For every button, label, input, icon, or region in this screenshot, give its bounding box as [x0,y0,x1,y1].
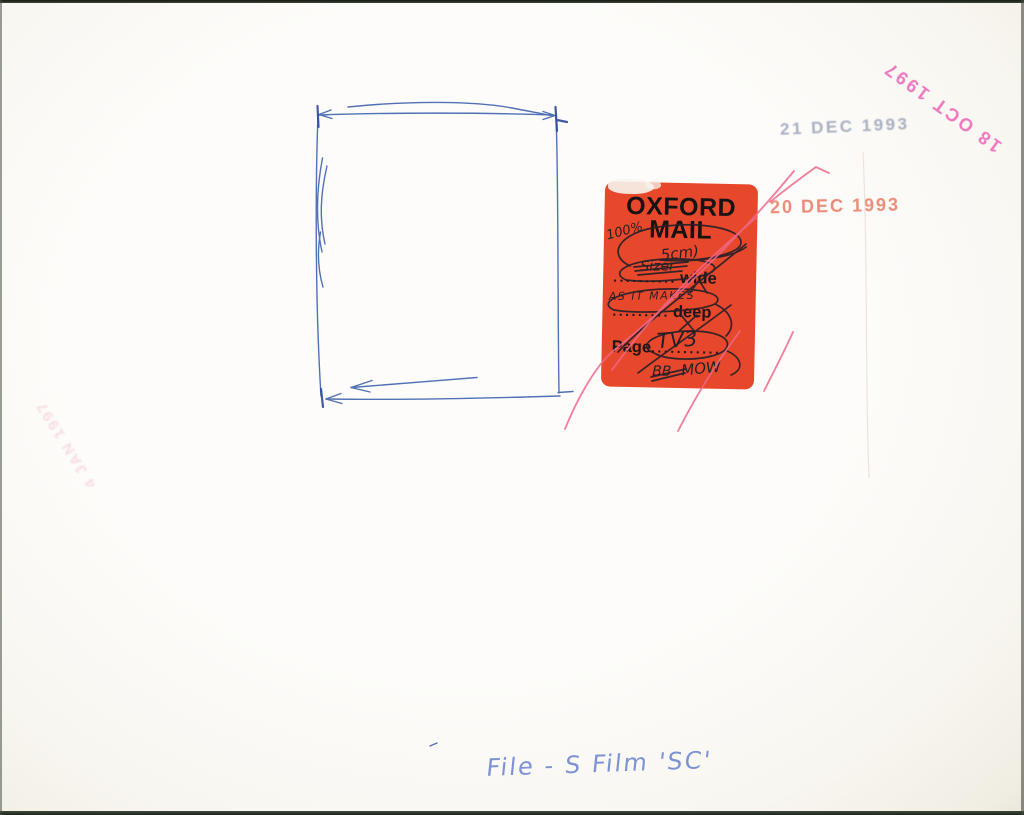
blue-crop-rectangle [316,102,573,746]
scan-edge-bottom [0,811,1024,815]
pen-annotations-overlay [0,0,1024,815]
photo-back: 21 DEC 1993 18 OCT 1997 20 DEC 1993 4 JA… [0,0,1024,815]
scan-edge-top [0,0,1024,3]
scan-edge-left [0,0,2,815]
blue-corner-ticks [318,106,568,407]
red-pen-strokes [565,167,829,431]
paper-crease [863,152,869,478]
